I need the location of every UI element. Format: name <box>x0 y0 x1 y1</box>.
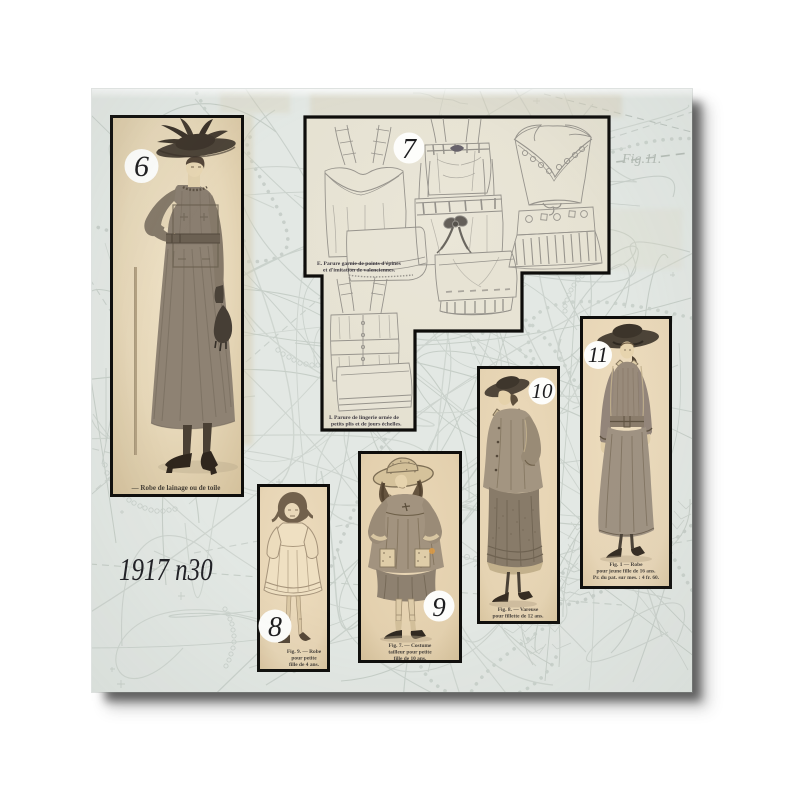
svg-text:Fig. 9. — Robe: Fig. 9. — Robe <box>287 649 322 655</box>
svg-text:Fig.11.: Fig.11. <box>621 152 661 167</box>
svg-text:pour petite: pour petite <box>291 656 317 662</box>
svg-text:fille de 10 ans.: fille de 10 ans. <box>394 656 427 662</box>
svg-text:Fig. 8. — Vareuse: Fig. 8. — Vareuse <box>498 607 539 613</box>
svg-text:6: 6 <box>134 150 149 183</box>
svg-text:— Robe de lainage ou de toile: — Robe de lainage ou de toile <box>131 484 221 492</box>
svg-text:10: 10 <box>532 379 554 403</box>
svg-text:11: 11 <box>588 342 608 367</box>
svg-text:pour fillette de 12 ans.: pour fillette de 12 ans. <box>493 614 545 620</box>
svg-text:E. Parure garnie de points d'é: E. Parure garnie de points d'épines <box>317 261 402 267</box>
svg-text:Fig. 7. — Costume: Fig. 7. — Costume <box>389 643 432 649</box>
svg-text:7: 7 <box>402 134 417 165</box>
svg-text:pour jeune fille de 16 ans.: pour jeune fille de 16 ans. <box>597 569 657 575</box>
svg-text:tailleur pour petite: tailleur pour petite <box>388 650 432 656</box>
svg-text:Fig. 1 — Robe: Fig. 1 — Robe <box>610 562 644 568</box>
svg-text:9: 9 <box>432 592 446 622</box>
svg-text:et d'imitation de valenciennes: et d'imitation de valenciennes. <box>323 268 396 274</box>
svg-text:I. Parure de lingerie ornée de: I. Parure de lingerie ornée de <box>329 415 399 421</box>
svg-text:Pr. du pat. sur mes. : 4 fr. 6: Pr. du pat. sur mes. : 4 fr. 60. <box>593 575 660 581</box>
svg-text:8: 8 <box>268 612 282 643</box>
svg-text:fille de 4 ans.: fille de 4 ans. <box>289 662 320 668</box>
svg-text:petits plis et de jours échell: petits plis et de jours échelles. <box>331 422 402 428</box>
